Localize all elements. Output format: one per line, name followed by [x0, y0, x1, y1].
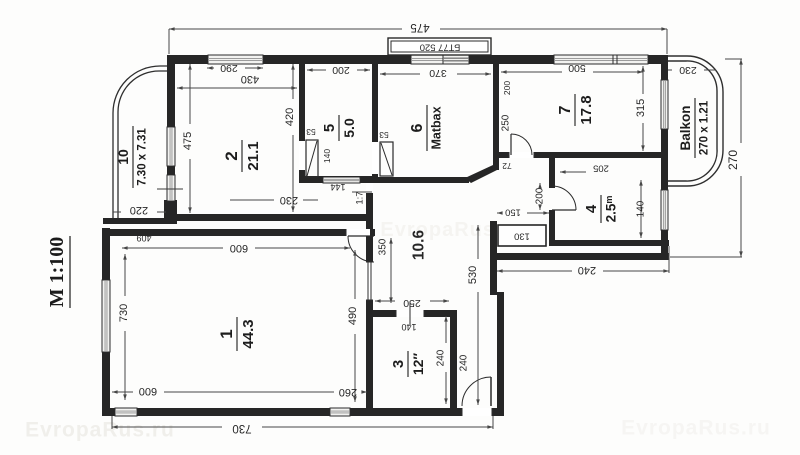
- svg-text:270 x 1.21: 270 x 1.21: [699, 100, 711, 155]
- svg-text:17.8: 17.8: [578, 95, 595, 124]
- svg-text:Matbax: Matbax: [430, 106, 444, 149]
- svg-text:53: 53: [306, 127, 316, 137]
- svg-text:44.3: 44.3: [240, 319, 257, 348]
- svg-text:12″: 12″: [410, 353, 426, 376]
- svg-text:140: 140: [322, 149, 332, 163]
- svg-text:600: 600: [139, 385, 157, 397]
- svg-text:БТ77 520: БТ77 520: [420, 42, 461, 53]
- svg-text:430: 430: [241, 73, 259, 85]
- svg-text:M 1:100: M 1:100: [46, 237, 68, 308]
- svg-text:409: 409: [136, 233, 151, 243]
- svg-text:270: 270: [726, 150, 740, 170]
- svg-text:730: 730: [118, 304, 130, 322]
- svg-text:3: 3: [390, 360, 407, 368]
- svg-text:144: 144: [330, 182, 345, 192]
- svg-text:7.30 x 7.31: 7.30 x 7.31: [137, 128, 149, 186]
- svg-text:10.6: 10.6: [411, 230, 428, 261]
- svg-text:240: 240: [436, 349, 447, 366]
- svg-text:21.1: 21.1: [245, 141, 262, 170]
- svg-text:290: 290: [220, 62, 238, 74]
- svg-text:475: 475: [410, 21, 429, 33]
- svg-text:315: 315: [635, 99, 647, 117]
- svg-text:240: 240: [578, 264, 596, 276]
- svg-text:350: 350: [378, 238, 389, 255]
- svg-text:2: 2: [222, 151, 241, 160]
- svg-text:EvropaRus.ru: EvropaRus.ru: [25, 419, 175, 442]
- svg-text:370: 370: [429, 67, 447, 79]
- svg-text:5: 5: [321, 124, 338, 132]
- svg-text:200: 200: [332, 64, 350, 76]
- svg-text:250: 250: [501, 114, 512, 131]
- svg-text:10: 10: [115, 149, 131, 165]
- svg-text:240: 240: [459, 354, 470, 371]
- svg-text:72: 72: [502, 161, 512, 171]
- svg-text:230: 230: [679, 64, 697, 76]
- svg-text:130: 130: [514, 231, 530, 242]
- svg-text:200: 200: [535, 187, 546, 204]
- svg-text:230: 230: [280, 194, 298, 206]
- svg-text:220: 220: [130, 204, 148, 216]
- svg-text:1:7: 1:7: [355, 191, 366, 204]
- svg-text:1: 1: [217, 329, 236, 338]
- svg-text:490: 490: [347, 307, 359, 325]
- svg-text:EvropaRus.ru: EvropaRus.ru: [621, 417, 771, 440]
- svg-text:250: 250: [403, 297, 421, 309]
- svg-text:530: 530: [467, 266, 479, 284]
- svg-text:53: 53: [379, 130, 389, 140]
- svg-text:730: 730: [232, 422, 251, 434]
- svg-text:140: 140: [636, 200, 647, 217]
- svg-text:200: 200: [502, 81, 512, 95]
- svg-text:150: 150: [505, 207, 521, 218]
- svg-text:475: 475: [182, 132, 194, 150]
- svg-text:7: 7: [557, 105, 574, 114]
- svg-text:140: 140: [401, 322, 416, 332]
- svg-text:420: 420: [284, 108, 296, 126]
- svg-text:Balkon: Balkon: [678, 105, 693, 150]
- svg-text:500: 500: [568, 62, 586, 74]
- svg-text:600: 600: [230, 242, 248, 254]
- svg-text:205: 205: [593, 163, 609, 174]
- svg-text:5.0: 5.0: [341, 118, 357, 138]
- svg-text:260: 260: [339, 386, 357, 398]
- svg-text:6: 6: [409, 123, 426, 132]
- svg-text:4: 4: [583, 204, 600, 213]
